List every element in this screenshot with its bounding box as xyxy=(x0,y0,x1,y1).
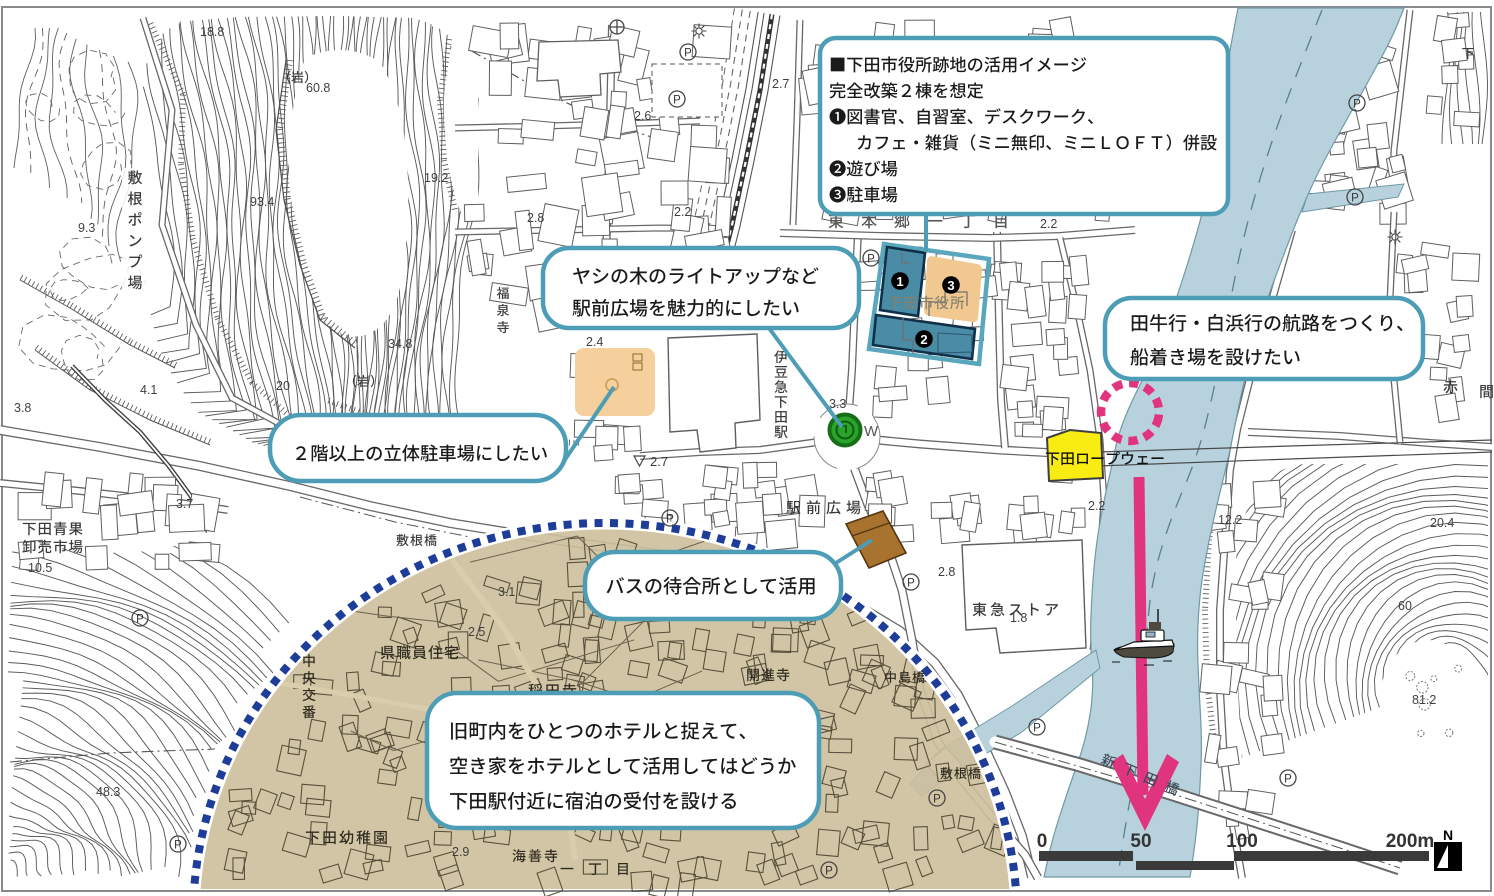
svg-text:P: P xyxy=(1353,99,1361,111)
svg-text:3: 3 xyxy=(947,278,954,293)
svg-text:P: P xyxy=(174,840,182,852)
svg-text:P: P xyxy=(1351,193,1359,205)
svg-text:0: 0 xyxy=(1037,831,1048,852)
svg-text:W: W xyxy=(864,423,879,440)
svg-text:100: 100 xyxy=(1226,831,1258,852)
svg-text:P: P xyxy=(867,254,875,266)
svg-text:34.8: 34.8 xyxy=(388,337,412,351)
svg-text:20.4: 20.4 xyxy=(1430,516,1454,530)
svg-text:12.2: 12.2 xyxy=(1218,513,1242,527)
svg-text:50: 50 xyxy=(1130,831,1151,852)
svg-text:2.9: 2.9 xyxy=(452,845,469,859)
svg-text:P: P xyxy=(666,514,674,526)
svg-text:P: P xyxy=(1284,774,1292,786)
svg-text:2.7: 2.7 xyxy=(650,454,668,469)
svg-text:60: 60 xyxy=(1398,599,1412,613)
svg-text:20: 20 xyxy=(276,379,290,393)
svg-text:P: P xyxy=(825,866,833,878)
svg-text:2.7: 2.7 xyxy=(772,77,789,91)
svg-text:2.2: 2.2 xyxy=(674,205,691,219)
svg-text:P: P xyxy=(907,578,915,590)
svg-text:2.4: 2.4 xyxy=(586,335,603,349)
svg-text:2.8: 2.8 xyxy=(938,565,955,579)
svg-text:3.7: 3.7 xyxy=(176,497,193,511)
svg-text:2: 2 xyxy=(920,332,927,347)
svg-text:18.8: 18.8 xyxy=(200,25,224,39)
svg-text:3.3: 3.3 xyxy=(829,397,846,411)
svg-text:P: P xyxy=(1033,723,1041,735)
svg-text:2.8: 2.8 xyxy=(527,211,544,225)
svg-text:2.2: 2.2 xyxy=(1040,217,1057,231)
svg-text:10.5: 10.5 xyxy=(28,561,52,575)
svg-text:2.6: 2.6 xyxy=(634,109,651,123)
svg-text:4.1: 4.1 xyxy=(140,383,157,397)
svg-text:3.1: 3.1 xyxy=(498,585,515,599)
svg-text:P: P xyxy=(136,614,144,626)
svg-text:9.3: 9.3 xyxy=(78,221,95,235)
svg-text:P: P xyxy=(673,95,681,107)
svg-text:200m: 200m xyxy=(1386,831,1435,852)
svg-text:19.2: 19.2 xyxy=(424,171,448,185)
svg-text:P: P xyxy=(933,794,941,806)
svg-text:48.3: 48.3 xyxy=(96,785,120,799)
svg-text:N: N xyxy=(1443,827,1453,843)
svg-text:81.2: 81.2 xyxy=(1412,693,1436,707)
svg-text:P: P xyxy=(684,48,692,60)
svg-text:2.2: 2.2 xyxy=(1088,499,1105,513)
svg-text:1: 1 xyxy=(896,274,903,289)
svg-text:2.5: 2.5 xyxy=(468,625,485,639)
svg-text:93.4: 93.4 xyxy=(250,195,274,209)
svg-text:3.8: 3.8 xyxy=(14,401,31,415)
svg-text:60.8: 60.8 xyxy=(306,81,330,95)
